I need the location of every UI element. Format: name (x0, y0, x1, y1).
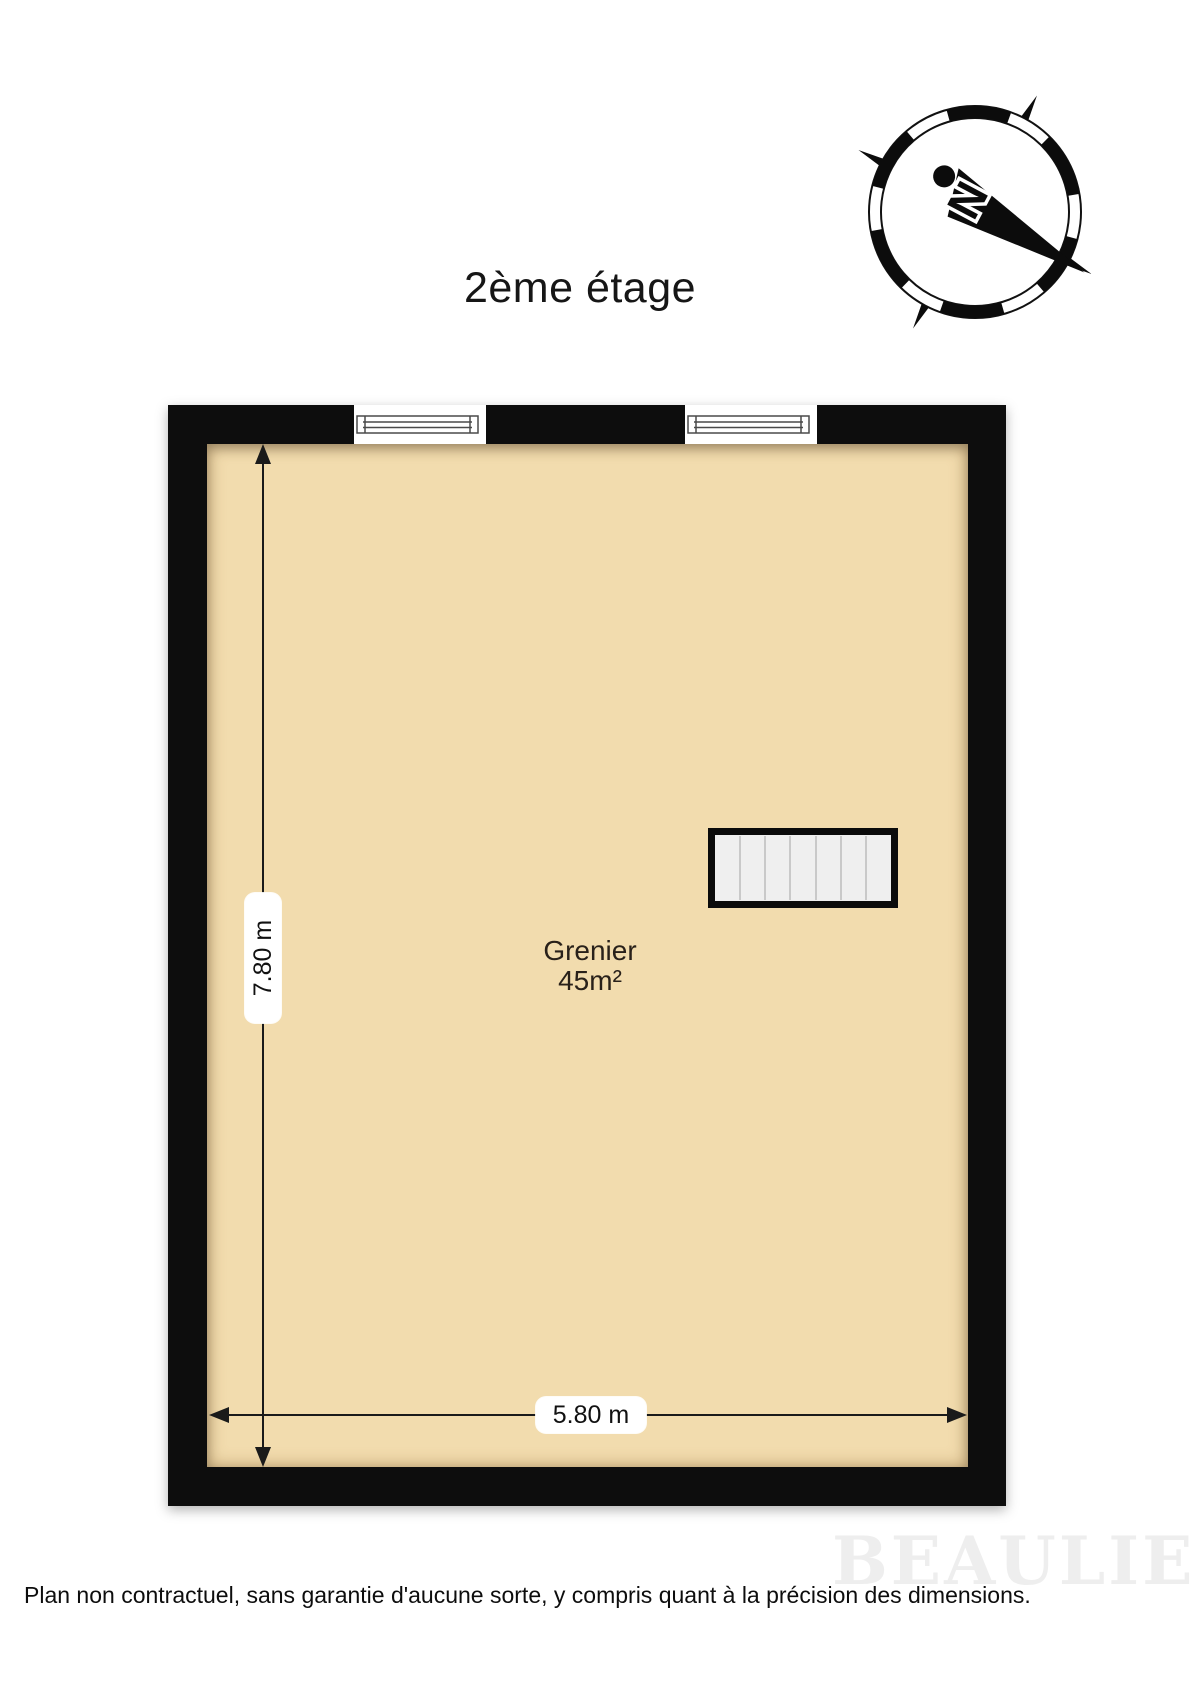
window-frame (688, 416, 809, 433)
staircase-well (715, 835, 891, 901)
window-icon (354, 405, 486, 444)
floor-plan-drawing (0, 0, 1200, 1696)
dimension-arrow-right-icon (947, 1407, 967, 1423)
room-name: Grenier (460, 936, 720, 966)
dimension-arrow-up-icon (255, 444, 271, 464)
vertical-dimension-label: 7.80 m (245, 893, 281, 1023)
disclaimer-text: Plan non contractuel, sans garantie d'au… (24, 1582, 1184, 1609)
staircase-icon (708, 828, 898, 908)
dimension-arrow-left-icon (209, 1407, 229, 1423)
window-frame (357, 416, 478, 433)
room-area: 45m² (460, 966, 720, 996)
room-label: Grenier 45m² (460, 936, 720, 996)
floor-plan-page: 2ème étage N (0, 0, 1200, 1696)
window-icon (685, 405, 817, 444)
horizontal-dimension-label: 5.80 m (536, 1397, 646, 1433)
dimension-arrow-down-icon (255, 1447, 271, 1467)
